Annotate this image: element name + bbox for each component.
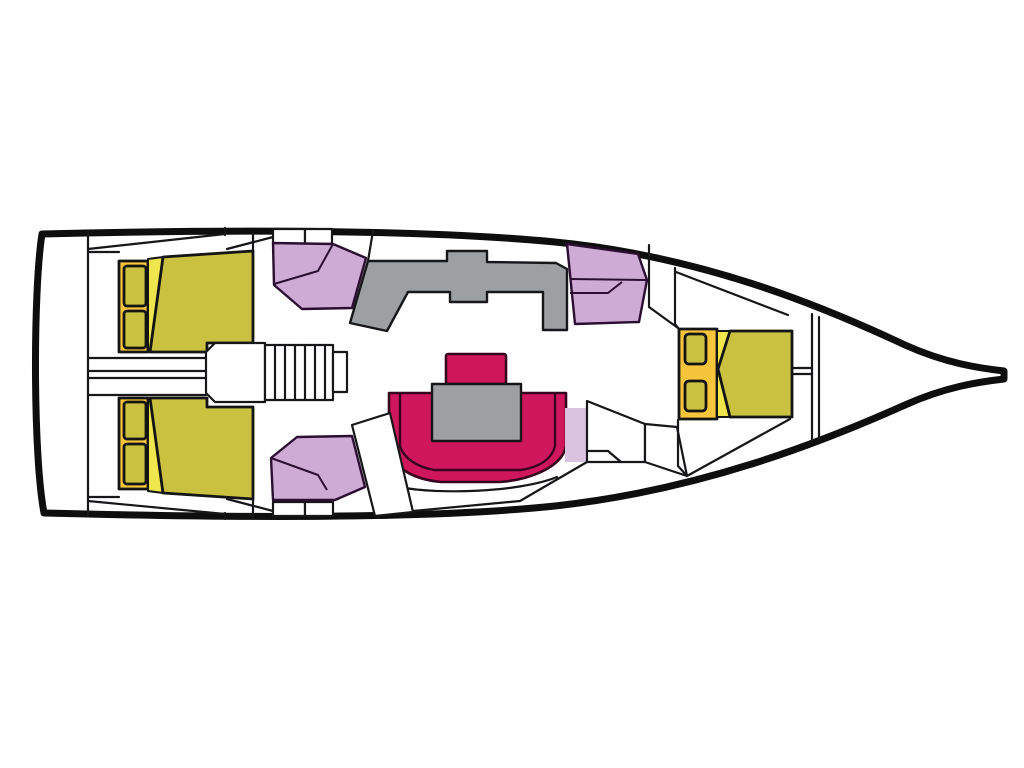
v-berth	[718, 331, 792, 417]
double-berth	[150, 251, 253, 352]
double-berth	[150, 398, 253, 499]
companionway-landing	[206, 343, 265, 402]
deck-hatch	[305, 229, 332, 244]
settee-cushion	[271, 436, 365, 500]
deck-hatch	[273, 502, 305, 516]
pillow	[124, 266, 146, 306]
nav-seat-and-chart-table	[567, 244, 647, 324]
forward-cabin	[679, 329, 792, 419]
dinette-backrest	[446, 354, 506, 384]
pillow	[685, 381, 706, 411]
nav-station	[567, 244, 647, 324]
nav-divider-seam	[570, 279, 646, 280]
yacht-floor-plan	[0, 0, 1024, 768]
companionway	[206, 343, 347, 402]
aft-cabin-port	[119, 251, 253, 352]
pillow	[685, 334, 706, 364]
dinette-table	[432, 384, 521, 441]
aft-cabin-starboard	[119, 398, 253, 499]
deck-hatch	[273, 229, 305, 244]
side-cushion	[565, 408, 587, 462]
companionway-top-step	[333, 352, 347, 392]
pillow	[124, 311, 146, 348]
deck-hatch	[305, 502, 333, 516]
pillow	[124, 444, 146, 484]
pillow	[124, 402, 146, 439]
floor-plan-canvas	[0, 0, 1024, 768]
